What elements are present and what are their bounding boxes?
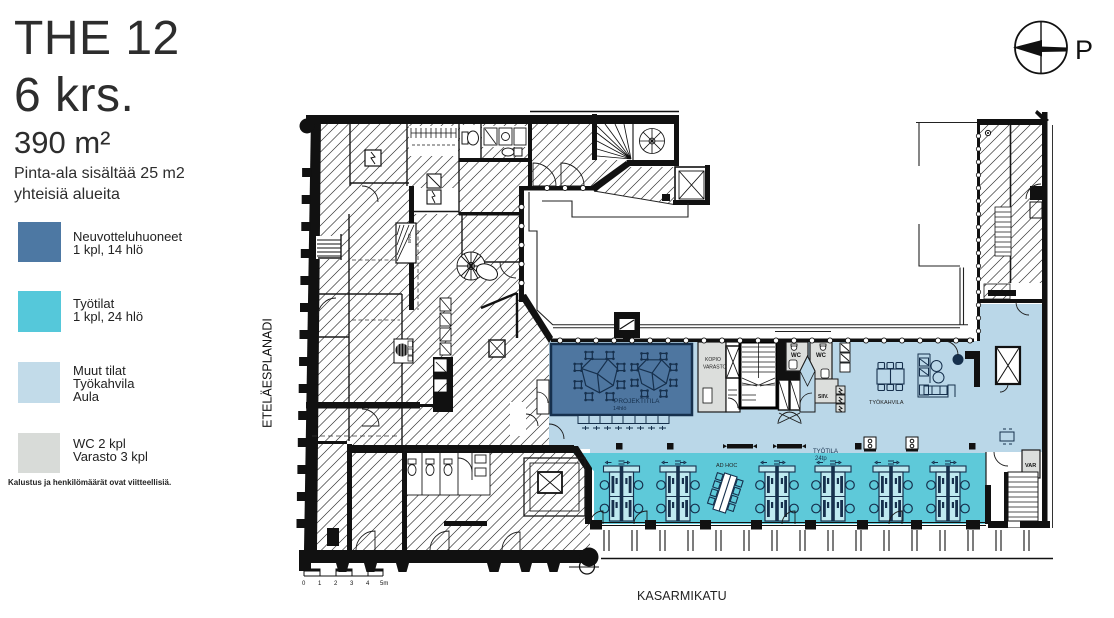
svg-text:TYÖTILA: TYÖTILA	[813, 448, 838, 455]
svg-text:2: 2	[334, 581, 338, 587]
svg-text:VARASTO: VARASTO	[703, 365, 727, 371]
svg-text:KOPIO: KOPIO	[705, 357, 721, 363]
svg-text:PROJEKTITILA: PROJEKTITILA	[614, 398, 660, 405]
svg-text:1: 1	[318, 581, 322, 587]
svg-text:14hlö: 14hlö	[613, 406, 626, 412]
svg-text:5m: 5m	[380, 581, 388, 587]
svg-text:0: 0	[302, 581, 306, 587]
svg-text:24tp: 24tp	[815, 456, 827, 462]
svg-text:BRG: BRG	[407, 233, 412, 243]
svg-text:P: P	[1075, 35, 1093, 65]
svg-text:SIIV.: SIIV.	[818, 394, 829, 400]
svg-text:TYÖKAHVILA: TYÖKAHVILA	[869, 399, 904, 406]
svg-text:WC: WC	[816, 353, 827, 359]
svg-text:AD HOC: AD HOC	[716, 463, 737, 469]
svg-text:4: 4	[366, 581, 370, 587]
svg-text:3: 3	[350, 581, 354, 587]
svg-text:VAR: VAR	[1025, 463, 1036, 469]
svg-text:WC: WC	[791, 353, 802, 359]
